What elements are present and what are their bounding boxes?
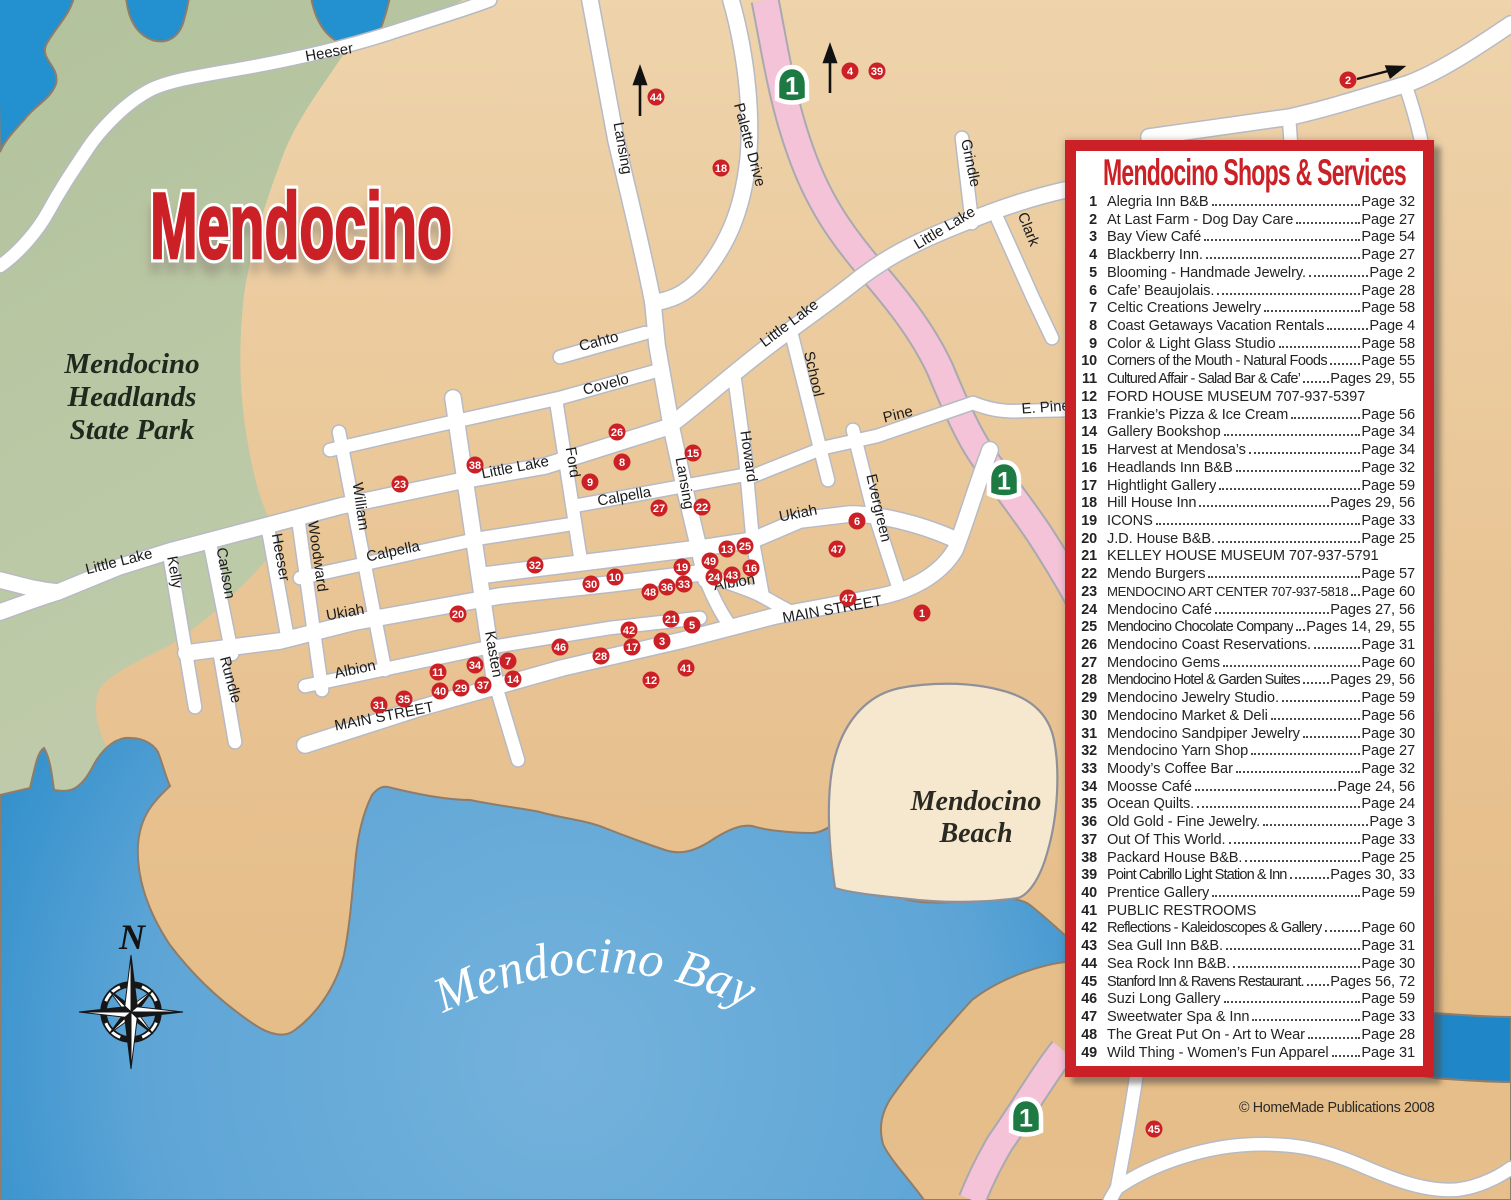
- svg-text:41: 41: [680, 663, 692, 675]
- svg-text:21: 21: [665, 614, 677, 626]
- svg-text:State Park: State Park: [70, 414, 195, 446]
- svg-text:33: 33: [678, 579, 690, 591]
- svg-text:1: 1: [919, 608, 925, 620]
- svg-text:13: 13: [721, 544, 733, 556]
- svg-text:49: 49: [704, 556, 716, 568]
- svg-text:31: 31: [373, 700, 385, 712]
- svg-text:16: 16: [745, 563, 757, 575]
- svg-text:19: 19: [676, 562, 688, 574]
- svg-text:9: 9: [587, 477, 593, 489]
- svg-text:27: 27: [653, 503, 665, 515]
- svg-text:4: 4: [847, 66, 854, 78]
- svg-text:Beach: Beach: [938, 818, 1012, 849]
- svg-text:30: 30: [585, 579, 597, 591]
- svg-text:28: 28: [595, 651, 607, 663]
- svg-text:7: 7: [505, 656, 511, 668]
- svg-text:1: 1: [1019, 1105, 1033, 1133]
- svg-text:Mendocino: Mendocino: [910, 786, 1042, 817]
- svg-text:45: 45: [1148, 1124, 1160, 1136]
- svg-text:22: 22: [696, 502, 708, 514]
- svg-text:6: 6: [854, 516, 860, 528]
- svg-text:37: 37: [477, 680, 489, 692]
- svg-text:24: 24: [708, 572, 721, 584]
- svg-text:Headlands: Headlands: [67, 381, 197, 413]
- svg-text:34: 34: [469, 660, 482, 672]
- svg-text:36: 36: [661, 582, 673, 594]
- svg-text:35: 35: [398, 694, 410, 706]
- svg-text:3: 3: [659, 636, 665, 648]
- svg-text:10: 10: [609, 572, 621, 584]
- svg-text:17: 17: [626, 642, 638, 654]
- svg-text:46: 46: [554, 642, 566, 654]
- svg-text:1: 1: [997, 468, 1011, 496]
- svg-text:44: 44: [650, 92, 663, 104]
- svg-text:47: 47: [842, 593, 854, 605]
- svg-text:40: 40: [434, 686, 446, 698]
- svg-text:43: 43: [726, 570, 738, 582]
- svg-text:8: 8: [619, 457, 625, 469]
- svg-text:14: 14: [507, 674, 520, 686]
- svg-text:N: N: [118, 917, 147, 957]
- svg-text:23: 23: [394, 479, 406, 491]
- svg-text:39: 39: [871, 66, 883, 78]
- svg-text:20: 20: [452, 609, 464, 621]
- svg-text:11: 11: [432, 667, 444, 679]
- svg-text:12: 12: [645, 675, 657, 687]
- svg-text:2: 2: [1345, 75, 1351, 87]
- svg-text:26: 26: [611, 427, 623, 439]
- svg-text:48: 48: [644, 587, 656, 599]
- svg-text:5: 5: [689, 620, 695, 632]
- svg-text:15: 15: [687, 448, 699, 460]
- svg-text:38: 38: [469, 460, 481, 472]
- svg-text:47: 47: [831, 544, 843, 556]
- svg-text:32: 32: [529, 560, 541, 572]
- svg-text:1: 1: [785, 73, 799, 101]
- svg-text:Mendocino: Mendocino: [63, 348, 199, 380]
- svg-text:Mendocino: Mendocino: [150, 173, 452, 278]
- svg-text:25: 25: [739, 541, 751, 553]
- svg-text:42: 42: [623, 625, 635, 637]
- svg-text:E. Pine: E. Pine: [1021, 397, 1070, 417]
- svg-text:18: 18: [715, 163, 727, 175]
- svg-text:29: 29: [455, 683, 467, 695]
